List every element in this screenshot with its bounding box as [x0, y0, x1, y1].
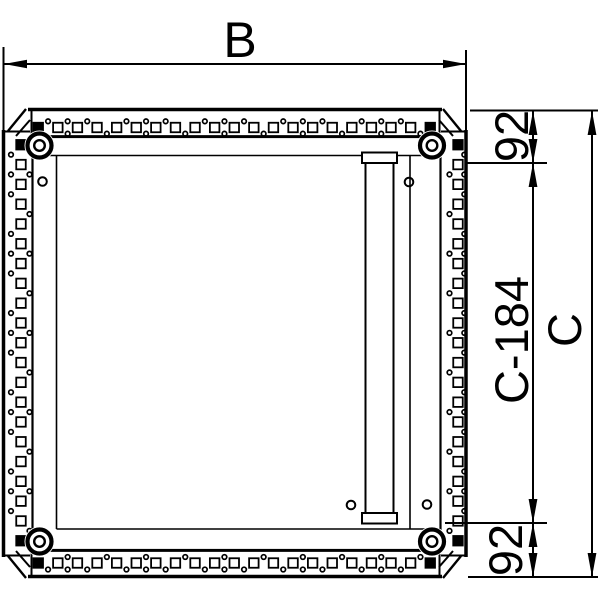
dim-label-b: B: [223, 12, 256, 68]
mounting-hole-top-right: [417, 131, 447, 161]
punch-square: [453, 536, 463, 546]
mounting-hole-bottom-right: [417, 527, 447, 557]
cover-strip: [362, 153, 397, 524]
punch-square: [16, 536, 26, 546]
gland-plate-drawing: B 92 C-184 92 C: [0, 0, 600, 600]
mounting-hole-ring: [28, 530, 52, 554]
punch-square: [34, 558, 44, 568]
dimension-bottom-92: 92: [479, 523, 537, 577]
dim-label-span-middle: C-184: [485, 276, 538, 404]
mounting-hole-top-left: [25, 131, 55, 161]
mounting-hole-bottom-left: [25, 527, 55, 557]
dim-label-c: C: [538, 313, 591, 347]
dim-label-offset-top: 92: [485, 110, 538, 162]
mounting-hole-ring: [420, 530, 444, 554]
cover-strip-bottom-cap: [362, 513, 397, 524]
cover-strip-top-cap: [362, 153, 397, 164]
mounting-hole-ring: [420, 134, 444, 158]
mounting-hole-ring: [28, 134, 52, 158]
cover-strip-body: [366, 163, 394, 513]
punch-square: [16, 140, 26, 150]
dim-label-offset-bottom: 92: [479, 524, 532, 576]
punch-square: [426, 558, 436, 568]
punch-square: [453, 140, 463, 150]
